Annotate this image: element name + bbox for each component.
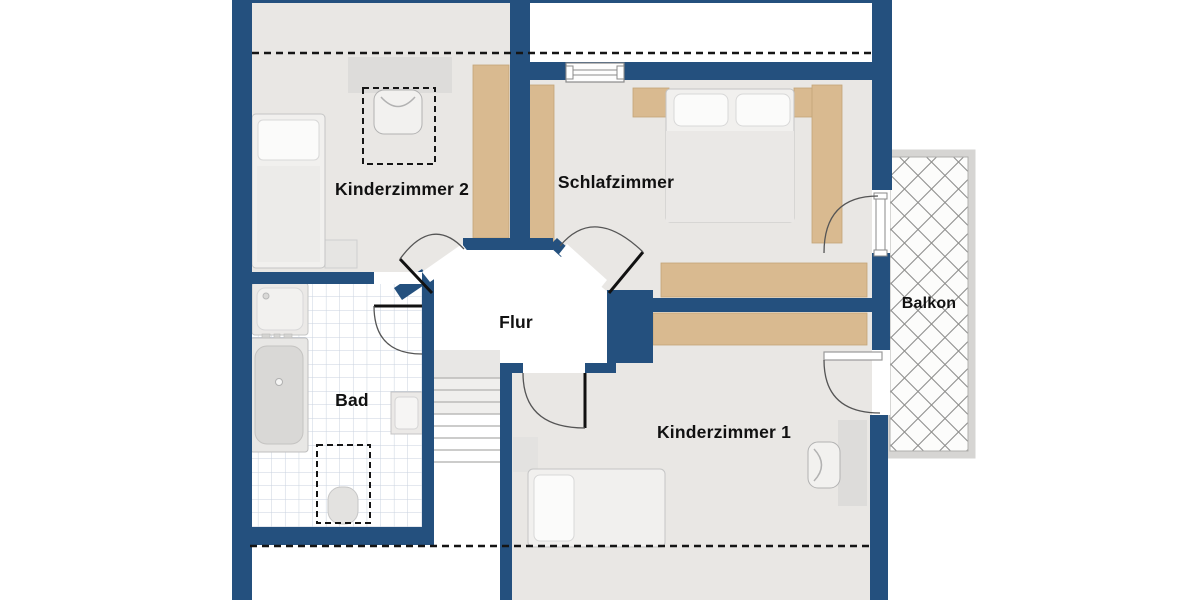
wall-flur-corner-block <box>607 290 653 363</box>
bad-bathtub-drain <box>276 379 283 386</box>
label-kinderzimmer2: Kinderzimmer 2 <box>335 179 469 199</box>
kinderzimmer2-bed-blanket <box>257 166 320 262</box>
kinderzimmer1-headboard-cabinet <box>513 437 538 472</box>
label-balkon: Balkon <box>902 295 957 312</box>
kinderzimmer1-wardrobe <box>653 313 867 345</box>
bad-toilet <box>328 487 358 524</box>
wall-outer-right-mid <box>872 253 890 350</box>
window-cap-left <box>566 66 573 79</box>
kinderzimmer2-wardrobe <box>473 65 509 238</box>
kinderzimmer1-bed-pillow <box>534 475 574 541</box>
schlafzimmer-nightstand-left <box>633 88 669 117</box>
kz1-balcony-door-leaf <box>824 352 882 360</box>
kinderzimmer1-door-opening <box>523 363 585 373</box>
label-schlafzimmer: Schlafzimmer <box>558 172 674 192</box>
window-cap-right <box>617 66 624 79</box>
label-bad: Bad <box>335 390 369 410</box>
wall-flur-top-stub <box>463 238 553 250</box>
schlafzimmer-sideboard <box>661 263 867 297</box>
wall-outer-right-bottom <box>870 415 888 600</box>
wall-bad-right <box>422 272 434 545</box>
bad-sink-basin <box>395 397 418 429</box>
kinderzimmer1-chair <box>808 442 840 488</box>
label-kinderzimmer1: Kinderzimmer 1 <box>657 422 791 442</box>
wall-flur-kz1-right <box>585 363 616 373</box>
floor-plan-page: Kinderzimmer 2 Schlafzimmer Flur Bad Kin… <box>0 0 1200 600</box>
floor-plan-canvas: Kinderzimmer 2 Schlafzimmer Flur Bad Kin… <box>0 0 1200 600</box>
wall-shaft-kz1 <box>500 363 512 600</box>
wall-bad-bottom <box>240 527 434 545</box>
wall-top-edge <box>252 0 872 3</box>
wall-outer-right-top <box>872 0 892 190</box>
bad-bathtub-basin <box>255 346 303 444</box>
schlafzimmer-wardrobe-right <box>812 85 842 243</box>
stair-upper-steps <box>432 378 500 414</box>
wall-kz2-sz-divider <box>510 0 530 245</box>
kinderzimmer2-chair <box>374 90 422 134</box>
schlafzimmer-bed-blanket <box>666 131 794 222</box>
kinderzimmer2-bed-pillow <box>258 120 319 160</box>
bad-shower-drain <box>263 293 269 299</box>
schlafzimmer-pillow-right <box>736 94 790 126</box>
schlafzimmer-pillow-left <box>674 94 728 126</box>
kinderzimmer1-desk <box>838 420 867 506</box>
sz-balcony-door-cap-bottom <box>874 250 887 256</box>
stair-landing <box>432 350 500 378</box>
wall-kz2-bottom <box>240 272 374 284</box>
sz-balcony-door-frame <box>876 196 885 253</box>
schlafzimmer-window <box>566 63 624 82</box>
schlafzimmer-wardrobe-left <box>528 85 554 243</box>
label-flur: Flur <box>499 312 533 332</box>
wall-sz-kz1-divider <box>616 298 872 312</box>
wall-outer-left <box>232 0 252 600</box>
kinderzimmer2-nightstand <box>325 240 357 268</box>
